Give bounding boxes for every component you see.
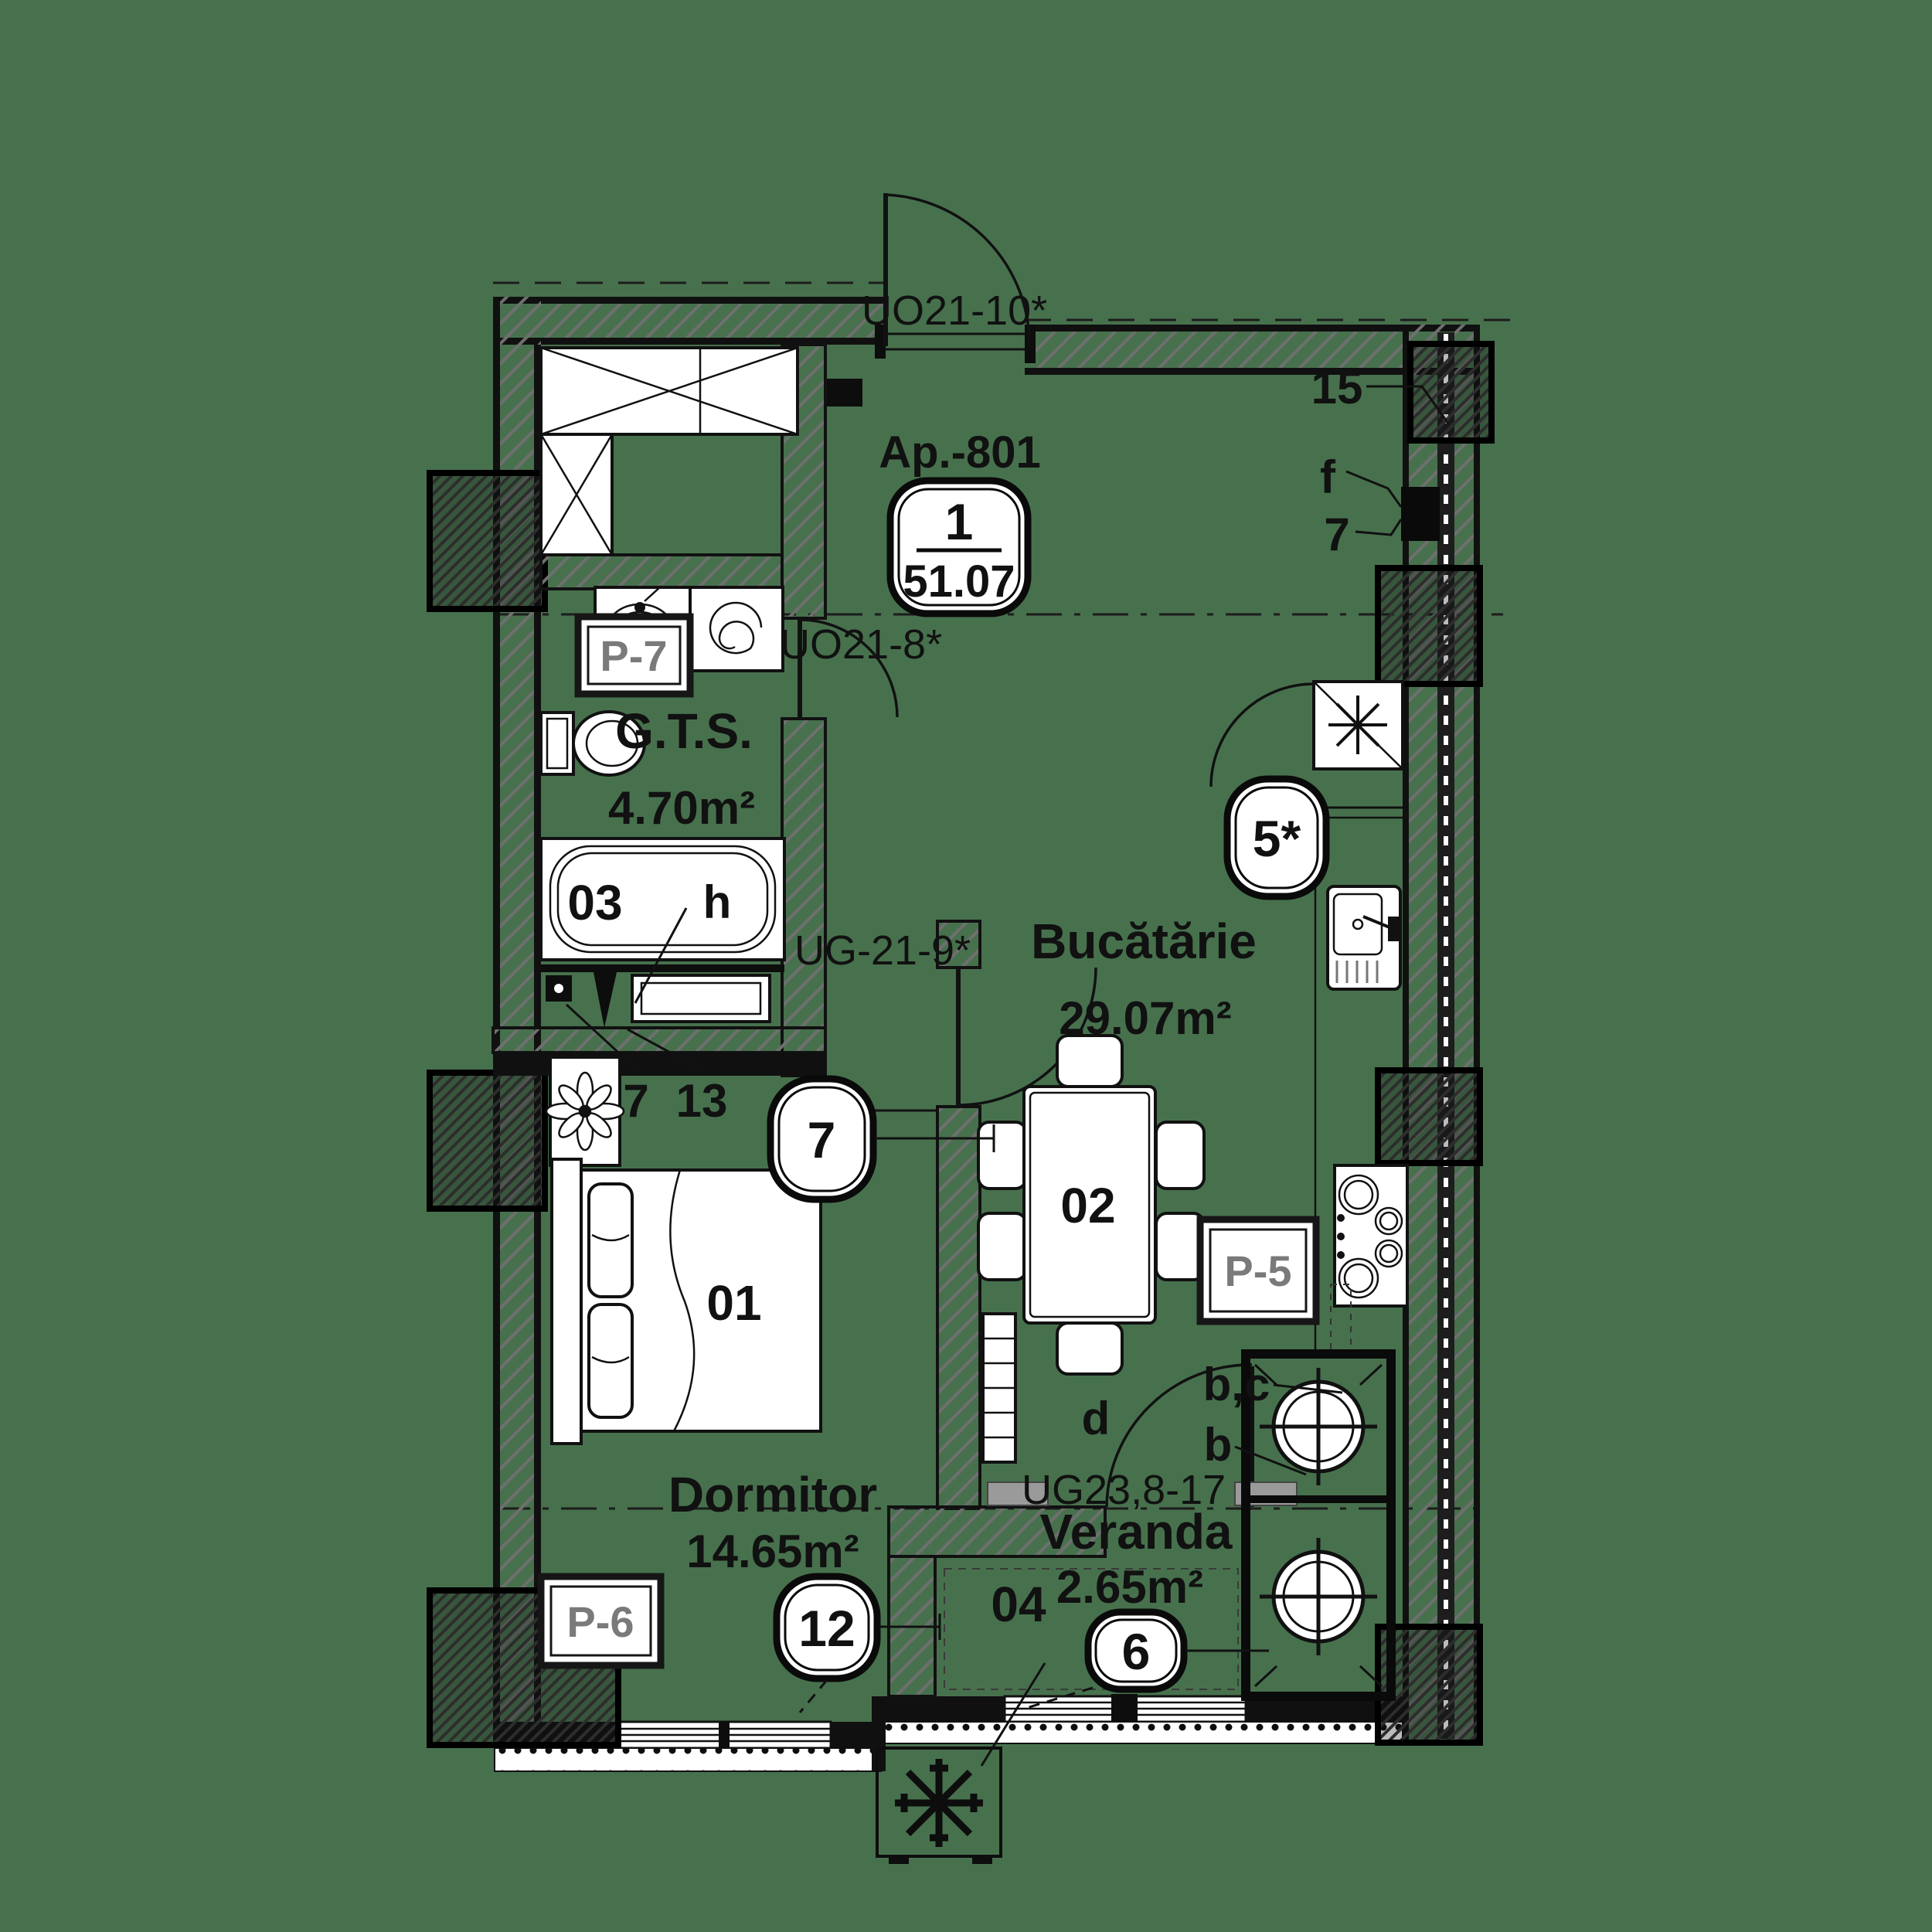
apartment-title: Ap.-801 xyxy=(879,427,1041,478)
chair-bottom xyxy=(1057,1323,1122,1374)
badge-kitchen-vent: 5* xyxy=(1227,779,1326,896)
badge-7-label: 7 xyxy=(808,1111,836,1168)
partition-gts-top xyxy=(541,555,782,589)
area-badge: 1 51.07 xyxy=(890,481,1028,614)
veranda-window xyxy=(1005,1694,1246,1725)
veranda-door-label: UG23,8-17 xyxy=(1022,1467,1226,1513)
bedroom-name: Dormitor xyxy=(668,1467,877,1522)
kitchen-furniture xyxy=(978,682,1407,1462)
wall-top-left xyxy=(493,297,883,345)
wardrobe xyxy=(541,348,798,555)
wall-vent-box xyxy=(1401,487,1440,541)
kitchen-area: 29.07m² xyxy=(1059,992,1231,1044)
panel-p5-label: P-5 xyxy=(1224,1247,1291,1295)
vent-duct-icon-2 xyxy=(1255,1538,1382,1686)
boiler xyxy=(1314,682,1403,769)
panel-p6-label: P-6 xyxy=(566,1597,634,1646)
bedroom-area: 14.65m² xyxy=(686,1526,859,1577)
veranda-number: 04 xyxy=(991,1577,1046,1632)
bedroom-number: 01 xyxy=(706,1275,761,1331)
kitchen-name: Bucătărie xyxy=(1031,913,1257,969)
badge-6-label: 6 xyxy=(1122,1623,1151,1680)
badge-12-label: 12 xyxy=(798,1600,855,1657)
floor-plan: 1 51.07 5* 7 12 6 P-7 P-5 xyxy=(0,0,1932,1932)
gts-door-label: UO21-8* xyxy=(780,621,942,668)
entry-door-label: UO21-10* xyxy=(862,287,1047,334)
mark-h: h xyxy=(703,876,732,928)
mark-15: 15 xyxy=(1311,362,1363,413)
bedroom-window xyxy=(618,1722,831,1748)
mark-d: d xyxy=(1082,1393,1111,1444)
panel-p5: P-5 xyxy=(1200,1219,1316,1321)
column-right-upper xyxy=(1378,568,1480,684)
panel-p7-label: P-7 xyxy=(600,631,667,680)
panel-p7: P-7 xyxy=(578,617,690,694)
chair-left-2 xyxy=(978,1213,1026,1280)
veranda-area: 2.65m² xyxy=(1056,1561,1203,1613)
gts-number: 03 xyxy=(567,875,622,930)
vent-duct-icon-1 xyxy=(1255,1365,1382,1485)
gts-name: G.T.S. xyxy=(615,703,753,759)
mark-f: f xyxy=(1320,451,1336,503)
column-corner-top-right xyxy=(1410,344,1492,440)
column-right-mid xyxy=(1378,1070,1480,1163)
mark-b: b xyxy=(1204,1419,1233,1471)
chair-right-1 xyxy=(1156,1122,1204,1189)
column-left-lower xyxy=(430,1073,545,1209)
kitchen-sink xyxy=(1328,886,1400,989)
apartment-area: 51.07 xyxy=(903,556,1015,607)
bed xyxy=(552,1159,821,1444)
badge-5-label: 5* xyxy=(1253,810,1301,867)
nightstand xyxy=(546,1057,624,1165)
mark-7-wall: 7 xyxy=(1324,509,1349,560)
mark-bc: b,c xyxy=(1203,1359,1270,1410)
partition-gts-bottom xyxy=(493,1028,825,1053)
kitchen-door-label: UG-21-9* xyxy=(794,927,971,974)
entry-door xyxy=(875,193,1036,363)
apartment-number: 1 xyxy=(945,493,974,550)
badge-veranda-window: 6 xyxy=(1022,1612,1269,1709)
boiler-star-icon xyxy=(1328,696,1387,754)
column-left-upper xyxy=(430,473,545,609)
mark-7-fixture: 7 xyxy=(623,1075,648,1127)
gts-area: 4.70m² xyxy=(608,782,755,834)
kitchen-number: 02 xyxy=(1060,1178,1115,1233)
partition-kitchen-main xyxy=(937,1107,980,1509)
bath-fittings xyxy=(541,964,784,1028)
radiator xyxy=(983,1314,1015,1462)
mark-13-fixture: 13 xyxy=(676,1075,728,1127)
partition-gts-right-lower xyxy=(782,719,825,1076)
panel-p6: P-6 xyxy=(541,1577,661,1665)
washing-machine xyxy=(690,587,783,671)
hall-door-stop xyxy=(827,379,862,406)
chair-left-1 xyxy=(978,1122,1026,1189)
